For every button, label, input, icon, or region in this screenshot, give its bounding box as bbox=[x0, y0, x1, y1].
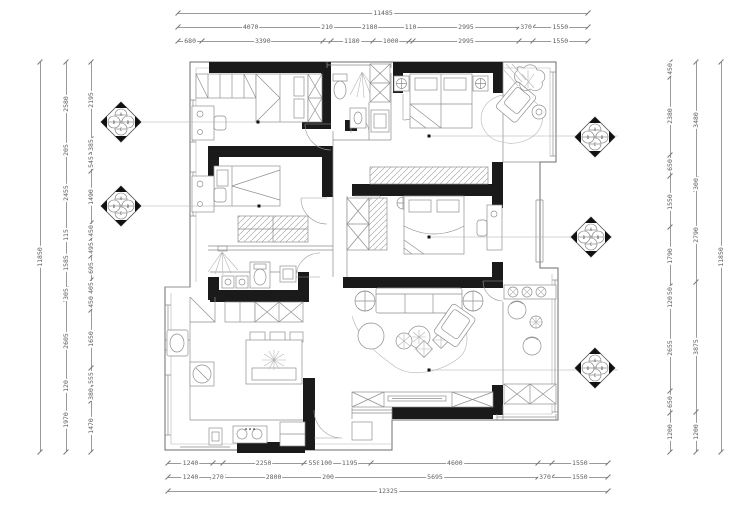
dim-label: 1585 bbox=[63, 254, 70, 272]
dim-label: 2800 bbox=[265, 474, 283, 481]
dim-label: 450 bbox=[88, 224, 95, 238]
dim-right-mid: 3480300279038751200 bbox=[689, 62, 703, 452]
dim-label: 650 bbox=[667, 395, 674, 409]
dim-label: 370 bbox=[519, 24, 533, 31]
dim-label: 1790 bbox=[667, 247, 674, 265]
dim-label: 100 bbox=[319, 460, 333, 467]
dim-label: 1195 bbox=[341, 460, 359, 467]
dim-label: 2580 bbox=[63, 95, 70, 113]
dim-label: 1490 bbox=[88, 188, 95, 206]
dim-label: 2195 bbox=[88, 92, 95, 110]
dim-label: 12325 bbox=[377, 488, 399, 495]
dim-label: 555 bbox=[88, 371, 95, 385]
dim-label: 11850 bbox=[37, 246, 44, 268]
dim-label: 205 bbox=[63, 143, 70, 157]
dim-label: 1470 bbox=[88, 417, 95, 435]
dim-label: 120 bbox=[63, 379, 70, 393]
floor-plan-drawing: A B C D A B C D A B C D A B C D A B C D bbox=[0, 0, 750, 505]
dim-label: 450 bbox=[667, 63, 674, 77]
bedroom2-furniture bbox=[192, 166, 308, 242]
dim-label: 650 bbox=[667, 159, 674, 173]
balcony-furniture bbox=[504, 285, 556, 404]
dim-bottom-row1: 12402250550100119546001550 bbox=[168, 456, 608, 470]
dim-label: 2995 bbox=[457, 38, 475, 45]
dim-label: 11485 bbox=[372, 10, 394, 17]
elevation-marker-3: A B C D bbox=[575, 117, 615, 157]
dim-label: 2250 bbox=[255, 460, 273, 467]
dim-label: 680 bbox=[183, 38, 197, 45]
dim-label: 1240 bbox=[182, 474, 200, 481]
dim-label: 1240 bbox=[182, 460, 200, 467]
dim-right-outer: 11850 bbox=[714, 62, 728, 452]
dim-label: 110 bbox=[404, 24, 418, 31]
dim-label: 2655 bbox=[667, 339, 674, 357]
dim-right-inner: 45023806501550179045012026556501200 bbox=[663, 62, 677, 452]
dim-label: 1550 bbox=[571, 460, 589, 467]
dim-label: 2455 bbox=[63, 184, 70, 202]
dim-label: 11850 bbox=[718, 246, 725, 268]
dim-label: 300 bbox=[693, 177, 700, 191]
dim-label: 695 bbox=[88, 261, 95, 275]
dim-top-overall: 11485 bbox=[178, 6, 588, 20]
elevation-marker-2: A B C D bbox=[101, 186, 141, 226]
dim-label: 210 bbox=[320, 24, 334, 31]
dim-label: 545 bbox=[88, 155, 95, 169]
dim-label: 5695 bbox=[426, 474, 444, 481]
dim-label: 2605 bbox=[63, 332, 70, 350]
dim-label: 1550 bbox=[667, 193, 674, 211]
dim-label: 120 bbox=[667, 295, 674, 309]
dim-label: 200 bbox=[321, 474, 335, 481]
dim-label: 2790 bbox=[693, 226, 700, 244]
dim-label: 3875 bbox=[693, 338, 700, 356]
dim-label: 1550 bbox=[552, 24, 570, 31]
dim-label: 370 bbox=[538, 474, 552, 481]
elevation-marker-1: A B C D bbox=[101, 102, 141, 142]
dim-label: 1000 bbox=[382, 38, 400, 45]
dim-label: 3390 bbox=[254, 38, 272, 45]
dim-label: 2380 bbox=[667, 107, 674, 125]
dim-label: 385 bbox=[88, 139, 95, 153]
dim-label: 4070 bbox=[242, 24, 260, 31]
dim-label: 1200 bbox=[693, 423, 700, 441]
dim-label: 3480 bbox=[693, 111, 700, 129]
bedroom3-furniture bbox=[394, 64, 546, 143]
doors bbox=[296, 94, 503, 438]
elevation-marker-5: A B C D bbox=[575, 348, 615, 388]
dim-left-outer: 11850 bbox=[33, 62, 47, 452]
elevation-marker-4: A B C D bbox=[571, 217, 611, 257]
dim-label: 450 bbox=[88, 296, 95, 310]
master-bedroom-furniture bbox=[347, 167, 502, 254]
bedroom1-furniture bbox=[192, 74, 322, 140]
dim-left-mid: 25802052455115158530526051201970 bbox=[59, 62, 73, 452]
floor-plan-sheet: A B C D A B C D A B C D A B C D A B C D … bbox=[0, 0, 750, 505]
dim-label: 1970 bbox=[63, 411, 70, 429]
dim-bottom-overall: 12325 bbox=[168, 484, 608, 498]
dim-top-row3: 68033901180100029951550 bbox=[178, 34, 588, 48]
dim-label: 305 bbox=[63, 287, 70, 301]
dim-label: 270 bbox=[211, 474, 225, 481]
dim-top-row2: 4070210218011029953701550 bbox=[178, 20, 588, 34]
dim-label: 115 bbox=[63, 228, 70, 242]
dim-left-inner: 2195385545149045049569540545016505553801… bbox=[84, 62, 98, 452]
dining-furniture bbox=[225, 302, 303, 384]
dim-label: 405 bbox=[88, 281, 95, 295]
dim-label: 380 bbox=[88, 387, 95, 401]
bathroom1-fixtures bbox=[333, 64, 390, 132]
dim-label: 495 bbox=[88, 241, 95, 255]
dim-label: 1550 bbox=[552, 38, 570, 45]
dim-label: 2995 bbox=[457, 24, 475, 31]
bathroom2-fixtures bbox=[208, 246, 296, 288]
dim-label: 2180 bbox=[361, 24, 379, 31]
dim-label: 1650 bbox=[88, 330, 95, 348]
dim-label: 1550 bbox=[571, 474, 589, 481]
dim-label: 1180 bbox=[343, 38, 361, 45]
dim-bottom-row2: 1240270280020056953701550 bbox=[168, 470, 608, 484]
dim-label: 1200 bbox=[667, 423, 674, 441]
dim-label: 4600 bbox=[446, 460, 464, 467]
